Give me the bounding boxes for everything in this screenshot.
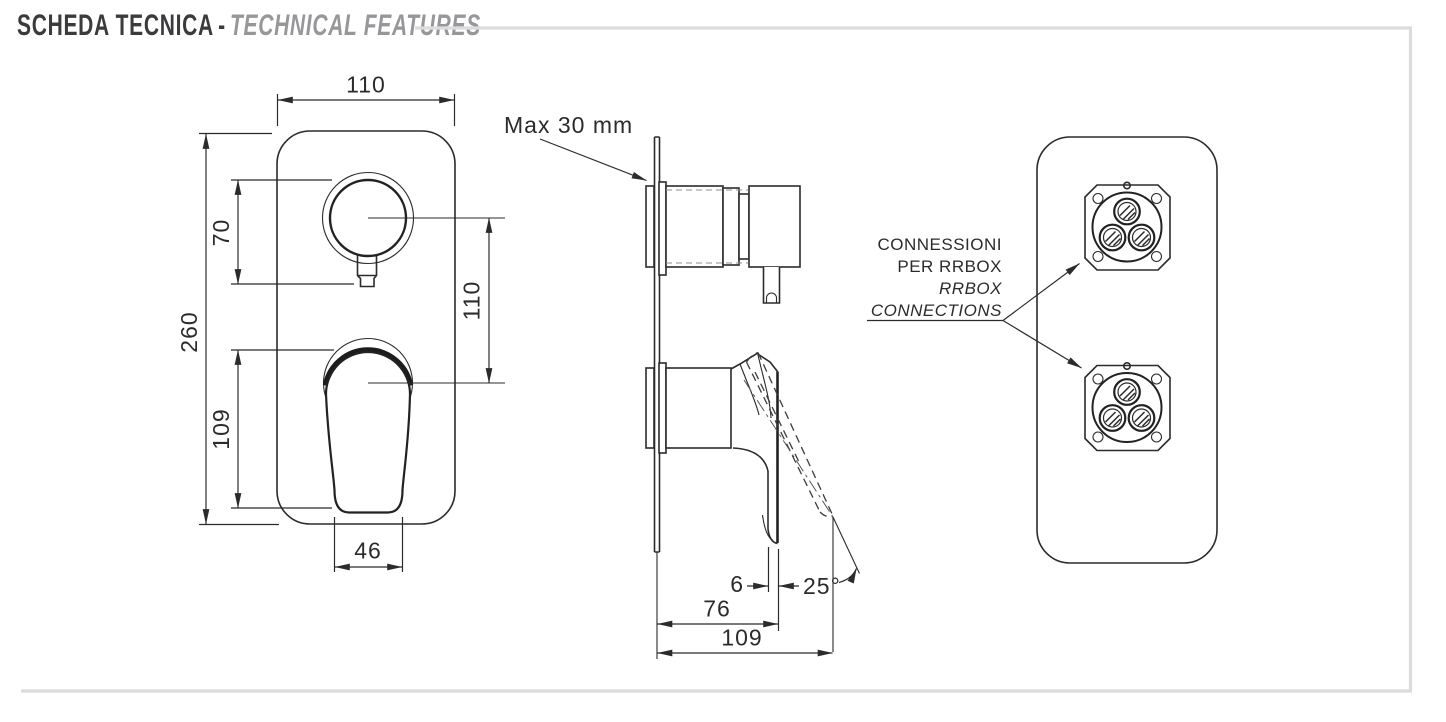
mixer-cartridge-side — [666, 368, 731, 448]
dim-label-total-depth: 109 — [721, 625, 762, 651]
dim-label-plate-width: 110 — [346, 72, 386, 98]
connections-label-line4: CONNECTIONS — [871, 301, 1002, 320]
open-position-center-line — [744, 380, 833, 517]
dim-handle-length: 109 — [208, 350, 334, 508]
dim-label-handle-length: 109 — [208, 408, 234, 449]
leader-arrow-bottom-box — [1003, 321, 1082, 369]
diverter-knob-front — [323, 173, 506, 287]
knob-body-side — [666, 186, 723, 267]
dim-label-knob-offset: 70 — [208, 219, 234, 247]
technical-drawing: 110 260 70 109 110 — [0, 0, 1446, 722]
dim-label-angle: 25° — [803, 573, 841, 599]
max-wall-annotation: Max 30 mm — [504, 112, 647, 181]
dim-label-depth-to-handle: 76 — [703, 596, 731, 622]
handle-open-position-dashed — [744, 353, 833, 518]
back-view: CONNESSIONI PER RRBOX RRBOX CONNECTIONS — [867, 137, 1217, 563]
leader-arrow-top-box — [1003, 264, 1080, 321]
angle-leader-arrow — [839, 569, 857, 583]
mixer-body-side — [646, 354, 778, 544]
dim-label-plate-height: 260 — [176, 311, 202, 352]
dim-handle-thickness: 6 — [730, 547, 799, 631]
dim-label-handle-width: 46 — [354, 538, 382, 564]
max-wall-label: Max 30 mm — [504, 112, 633, 138]
dim-plate-width: 110 — [278, 72, 455, 127]
knob-flange-side — [659, 182, 666, 275]
connections-label-line3: RRBOX — [939, 279, 1002, 298]
dim-angle-25: 25° — [803, 517, 860, 652]
side-view: Max 30 mm 6 25° 76 109 — [504, 112, 860, 659]
handle-outline — [326, 352, 410, 513]
mixer-handle-front — [324, 339, 506, 513]
connection-box-bottom — [1085, 363, 1170, 451]
handle-cap-side — [731, 354, 778, 372]
dim-depth-to-handle: 76 — [658, 596, 779, 625]
knob-stem-side — [764, 267, 780, 303]
dim-centers-spacing: 110 — [459, 218, 490, 383]
diverter-knob-side — [646, 182, 800, 303]
dim-label-handle-thickness: 6 — [730, 571, 744, 597]
knob-cap-side — [749, 186, 800, 267]
technical-sheet-page: SCHEDA TECNICA-TECHNICAL FEATURES — [0, 0, 1446, 722]
connections-label: CONNESSIONI PER RRBOX RRBOX CONNECTIONS — [867, 235, 1082, 368]
front-view: 110 260 70 109 110 — [176, 72, 505, 573]
dim-plate-height: 260 — [176, 134, 279, 525]
mixer-flange-side — [659, 363, 666, 453]
max-wall-leader-arrow — [540, 139, 647, 181]
connection-box-top — [1085, 182, 1170, 270]
connections-label-line1: CONNESSIONI — [877, 235, 1002, 254]
dim-handle-width: 46 — [335, 517, 403, 572]
dim-label-centers-spacing: 110 — [459, 281, 485, 321]
connections-label-line2: PER RRBOX — [897, 257, 1002, 276]
handle-fillet — [733, 448, 768, 471]
page-frame-rule — [21, 28, 1411, 691]
dim-total-depth: 109 — [658, 625, 833, 654]
